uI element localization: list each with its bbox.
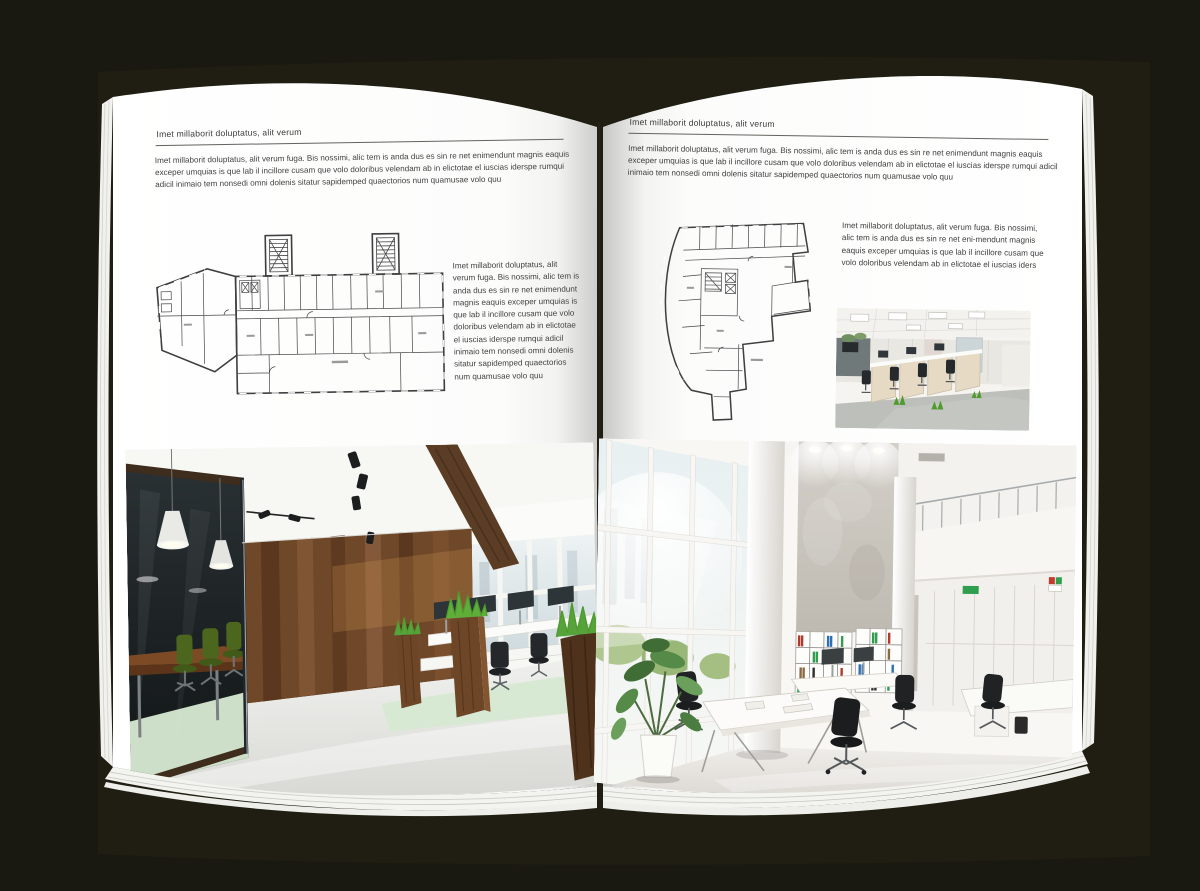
concrete-feature-wall [788, 438, 903, 632]
office-photo-left [125, 442, 599, 805]
left-intro-paragraph: Imet millaborit doluptatus, alit verum f… [155, 148, 580, 191]
stair-cores [269, 238, 395, 272]
left-page: Imet millaborit doluptatus, alit verum I… [118, 100, 601, 803]
magazine-mockup-canvas: Imet millaborit doluptatus, alit verum I… [0, 0, 1200, 891]
left-plan-caption: Imet millaborit doluptatus, alit verum f… [452, 258, 581, 383]
left-page-kicker: Imet millaborit doluptatus, alit verum [156, 127, 301, 139]
right-intro-paragraph: Imet millaborit doluptatus, alit verum f… [628, 143, 1058, 186]
floor-plan-right [639, 215, 842, 426]
mezzanine [897, 443, 1077, 590]
office-photo-right [594, 438, 1077, 805]
interior-partitions [157, 269, 445, 395]
waste-bin [1015, 717, 1028, 734]
floor-plan-left [146, 218, 457, 415]
left-header-rule [156, 139, 564, 146]
right-plan-caption: Imet millaborit doluptatus, alit verum f… [841, 220, 1048, 272]
right-header-rule [628, 133, 1048, 140]
meeting-room-glass [125, 448, 248, 790]
floor-plan-right-figure [639, 215, 842, 426]
right-page-kicker: Imet millaborit doluptatus, alit verum [630, 117, 775, 129]
office-photo-small [835, 308, 1031, 431]
floor-plan-left-figure [146, 218, 457, 415]
right-page: Imet millaborit doluptatus, alit verum I… [595, 92, 1081, 809]
exit-sign [963, 586, 979, 594]
